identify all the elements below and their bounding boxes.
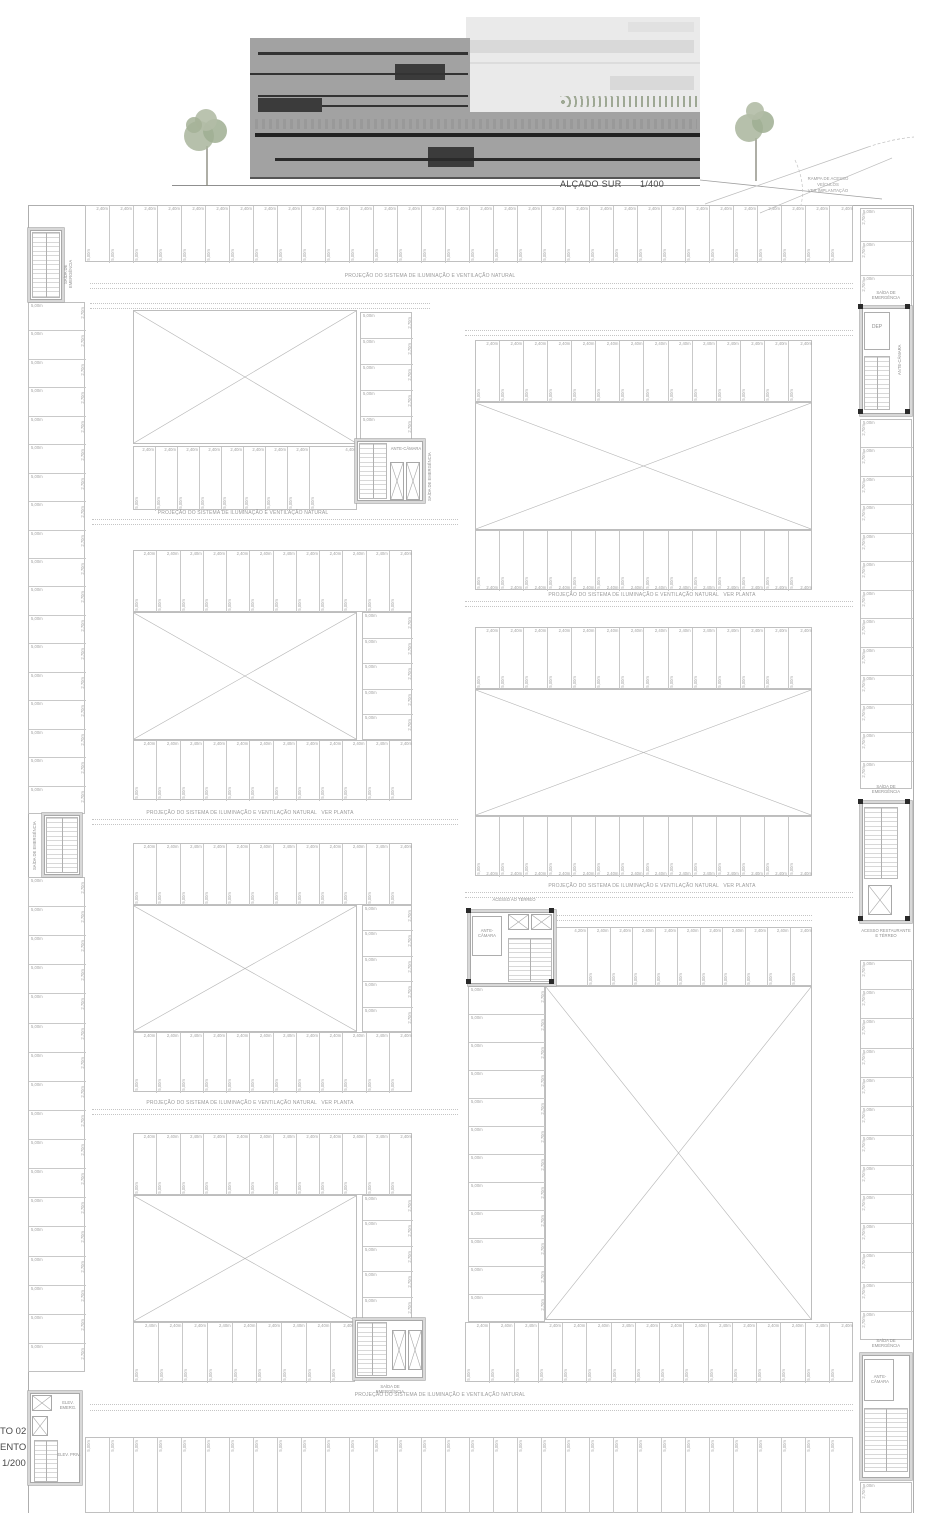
parking-stall: 2,40m5,00m [390,1134,413,1196]
stall-dimension: 2,70m [408,910,412,922]
parking-stall: 5,00m2,70m [861,1283,913,1312]
parking-stall: 5,00m2,70m [361,391,413,417]
stall-dimension: 5,00m [391,892,395,904]
stall-dimension: 5,00m [423,1440,427,1452]
stall-dimension: 5,00m [159,249,163,261]
stall-dimension: 5,00m [831,249,835,261]
stall-dimension: 5,00m [735,1440,739,1452]
stall-dimension: 2,70m [408,1276,412,1288]
stall-dimension: 5,00m [471,1044,483,1048]
sheet-title-fragment: ENTO [0,1443,26,1453]
parking-stall: 5,00m2,70m [29,502,86,530]
stall-dimension: 5,00m [639,249,643,261]
parking-stall: 2,40m5,00m [781,1323,805,1383]
stall-dimension: 5,00m [543,249,547,261]
parking-stall: 2,40m5,00m [693,341,717,403]
stall-dimension: 2,40m [400,845,412,849]
parking-stall: 2,40m5,00m [645,628,669,690]
projection-dotted-line [92,1109,458,1110]
parking-stall: 5,00m2,70m [29,730,86,758]
stall-dimension: 5,00m [391,1079,395,1091]
stall-dimension: 2,70m [81,392,85,404]
stall-dimension: 5,00m [477,676,481,688]
stall-dimension: 5,00m [159,1440,163,1452]
parking-stall: 2,40m5,00m [250,1134,273,1196]
parking-stall: 2,40m5,00m [297,551,320,613]
stall-dimension: 2,40m [353,1034,365,1038]
stall-dimension: 5,00m [783,1440,787,1452]
stall-dimension: 5,00m [158,1079,162,1091]
stall-dimension: 5,00m [275,1182,279,1194]
stall-dimension: 5,00m [31,418,43,422]
parking-column: 5,00m2,70m5,00m2,70m5,00m2,70m5,00m2,70m… [860,419,912,789]
parking-stall: 2,40m5,00m [660,1323,684,1383]
parking-stall: 5,00m [302,1438,326,1513]
stall-dimension: 5,00m [365,614,377,618]
stall-dimension: 5,00m [267,497,271,509]
stall-dimension: 5,00m [368,1182,372,1194]
stall-dimension: 5,00m [782,1369,786,1381]
stall-dimension: 5,00m [831,1440,835,1452]
parking-stall: 5,00m [86,1438,110,1513]
elevation-scale: 1/400 [640,179,664,189]
parking-stall: 2,40m5,00m [806,1323,830,1383]
stall-dimension: 2,40m [186,448,198,452]
stall-dimension: 5,00m [702,973,706,985]
stall-dimension: 5,00m [298,599,302,611]
ante-chamber-label: ANTE-CÂMARA [473,928,501,939]
stall-dimension: 5,00m [718,577,722,589]
stall-dimension: 2,40m [213,1034,225,1038]
elevator-shaft [32,1416,48,1436]
stair-icon [32,232,60,298]
stall-dimension: 5,00m [694,577,698,589]
parking-stall: 2,40m5,00m [367,1033,390,1093]
stall-dimension: 5,00m [766,389,770,401]
stall-dimension: 2,40m [751,586,763,590]
parking-stall: 2,40m5,00m [320,1033,343,1093]
parking-stall: 2,40m5,00m [157,1033,180,1093]
stall-dimension: 2,70m [81,762,85,774]
parking-stall: 5,00m [734,1438,758,1513]
stall-dimension: 5,00m [207,1440,211,1452]
parking-row: 4,20m5,00m2,40m5,00m2,40m5,00m2,40m5,00m… [545,927,812,986]
stall-dimension: 2,70m [81,705,85,717]
stall-dimension: 2,40m [687,929,699,933]
stall-dimension: 2,40m [703,629,715,633]
stall-dimension: 5,00m [646,577,650,589]
stall-dimension: 2,70m [862,766,866,778]
stall-dimension: 5,00m [31,1141,43,1145]
stall-dimension: 5,00m [275,787,279,799]
stall-dimension: 5,00m [228,1182,232,1194]
stall-dimension: 5,00m [742,389,746,401]
parking-stall: 5,00m [158,1438,182,1513]
parking-stall: 2,40m5,00m [741,628,765,690]
stall-dimension: 2,40m [679,629,691,633]
parking-stall: 2,40m5,00m [587,1323,611,1383]
stall-dimension: 5,00m [344,1079,348,1091]
stall-dimension: 2,40m [144,1135,156,1139]
parking-stall: 5,00m2,70m [363,1008,413,1033]
stall-dimension: 2,40m [583,586,595,590]
sheet-title-fragment: TO 02 [0,1427,26,1437]
parking-stall: 5,00m [566,1438,590,1513]
stall-dimension: 5,00m [471,988,483,992]
stall-dimension: 2,40m [619,929,631,933]
stall-dimension: 5,00m [321,1182,325,1194]
stall-dimension: 5,00m [646,389,650,401]
parking-row: 2,40m5,00m2,40m5,00m2,40m5,00m2,40m5,00m… [133,446,357,510]
stall-dimension: 5,00m [718,863,722,875]
elevator-shaft [390,462,404,500]
stall-dimension: 5,00m [298,1182,302,1194]
stall-dimension: 2,40m [145,1324,157,1328]
stall-dimension: 5,00m [31,617,43,621]
stall-dimension: 2,40m [164,448,176,452]
structural-column [905,409,910,414]
stall-dimension: 2,40m [376,1135,388,1139]
stall-dimension: 2,40m [486,629,498,633]
parking-stall: 2,40m5,00m [274,1134,297,1196]
parking-stall: 2,40m5,00m [789,817,813,877]
stall-dimension: 5,00m [205,787,209,799]
projection-dotted-line [90,308,430,309]
emergency-exit-label: SAÍDA DE EMERGÊNCIA [32,820,42,872]
stall-dimension: 2,70m [81,1173,85,1185]
stall-dimension: 2,40m [244,1324,256,1328]
parking-stall: 5,00m2,70m [29,474,86,502]
stall-dimension: 5,00m [615,1440,619,1452]
stall-dimension: 5,00m [471,249,475,261]
elevator-shaft [406,462,420,500]
stall-dimension: 2,70m [81,421,85,433]
stall-dimension: 2,40m [525,1324,537,1328]
stall-dimension: 5,00m [228,892,232,904]
stall-dimension: 2,70m [862,994,866,1006]
stall-dimension: 5,00m [621,389,625,401]
stall-dimension: 2,40m [510,629,522,633]
stall-dimension: 5,00m [471,1128,483,1132]
stall-dimension: 2,70m [81,620,85,632]
parking-stall: 5,00m2,70m [29,1140,86,1169]
stall-dimension: 2,70m [862,246,866,258]
parking-stall: 2,40m5,00m [250,551,273,613]
stall-dimension: 2,40m [213,742,225,746]
stall-dimension: 5,00m [471,1212,483,1216]
parking-stall: 5,00m2,70m [29,1257,86,1286]
parking-stall: 2,40m5,00m [134,1033,157,1093]
stall-dimension: 5,00m [298,892,302,904]
stall-dimension: 5,00m [351,1440,355,1452]
structural-column [858,799,863,804]
stall-dimension: 5,00m [597,577,601,589]
stall-dimension: 2,40m [268,1324,280,1328]
stall-dimension: 5,00m [87,1440,91,1452]
elevator-shaft [408,1330,422,1370]
stall-dimension: 5,00m [613,1369,617,1381]
stall-dimension: 2,40m [353,845,365,849]
stall-dimension: 2,40m [190,845,202,849]
stall-dimension: 5,00m [612,973,616,985]
stair-icon [864,1408,908,1472]
stall-dimension: 2,70m [862,965,866,977]
parking-row: 2,40m5,00m2,40m5,00m2,40m5,00m2,40m5,00m… [133,1133,412,1195]
stall-dimension: 2,40m [655,586,667,590]
parking-stall: 2,40m5,00m [367,741,390,801]
stall-dimension: 2,40m [631,872,643,876]
parking-stall: 2,40m5,00m [476,628,500,690]
stall-dimension: 2,40m [353,552,365,556]
drawing-sheet: ALÇADO SUR 1/400 RAMPA DE ACESSO VEÍCULO… [0,0,946,1513]
stall-dimension: 2,40m [646,1324,658,1328]
parking-column: 5,00m2,70m5,00m2,70m5,00m2,70m5,00m2,70m… [28,302,85,814]
stall-dimension: 5,00m [467,1369,471,1381]
parking-stall: 5,00m2,70m [469,1183,546,1211]
parking-stall: 2,40m5,00m [288,447,310,511]
stall-dimension: 5,00m [549,863,553,875]
stall-dimension: 5,00m [31,446,43,450]
parking-stall: 2,40m5,00m [524,817,548,877]
parking-stall: 5,00m [662,1438,686,1513]
stall-dimension: 5,00m [363,418,375,422]
parking-stall: 2,40m5,00m [134,551,157,613]
stall-dimension: 5,00m [391,1182,395,1194]
parking-stall: 5,00m2,70m [29,758,86,786]
parking-stall: 2,40m5,00m [178,447,200,511]
parking-stall: 5,00m2,70m [861,1049,913,1078]
parking-stall: 2,40m5,00m [390,844,413,906]
stall-dimension: 5,00m [344,787,348,799]
parking-stall: 2,40m5,00m [159,1323,184,1383]
parking-stall: 2,40m5,00m [596,341,620,403]
parking-stall: 5,00m2,70m [363,931,413,956]
parking-stall: 5,00m2,70m [29,1286,86,1315]
parking-stall: 5,00m2,70m [363,1196,413,1221]
stall-dimension: 2,70m [81,307,85,319]
stall-dimension: 2,70m [408,694,412,706]
parking-stall: 2,40m5,00m [227,1033,250,1093]
stall-dimension: 5,00m [471,1240,483,1244]
stall-dimension: 5,00m [201,497,205,509]
stall-dimension: 2,40m [353,742,365,746]
stall-dimension: 2,40m [775,342,787,346]
stall-dimension: 5,00m [694,676,698,688]
parking-stall: 2,40m5,00m [343,551,366,613]
stall-dimension: 5,00m [182,892,186,904]
stall-dimension: 2,70m [408,668,412,680]
stall-dimension: 5,00m [157,497,161,509]
stall-dimension: 2,40m [732,929,744,933]
ante-chamber-label: ANTE-CÂMARA [390,446,422,451]
stall-dimension: 2,40m [703,586,715,590]
stall-dimension: 5,00m [275,892,279,904]
parking-stall: 2,40m5,00m [830,1323,854,1383]
parking-row: 2,40m5,00m2,40m5,00m2,40m5,00m2,40m5,00m… [475,627,812,689]
stall-dimension: 5,00m [31,995,43,999]
parking-stall: 2,40m5,00m [297,1134,320,1196]
stall-dimension: 5,00m [135,787,139,799]
stall-dimension: 5,00m [807,1440,811,1452]
parking-stall: 2,40m5,00m [181,1033,204,1093]
stall-dimension: 5,00m [365,665,377,669]
parking-column: 5,00m2,70m5,00m2,70m5,00m2,70m5,00m2,70m… [860,960,912,1340]
elevation-drawing: ALÇADO SUR 1/400 RAMPA DE ACESSO VEÍCULO… [0,0,946,205]
stall-dimension: 2,40m [751,872,763,876]
stall-dimension: 2,40m [208,448,220,452]
parking-stall: 2,40m5,00m [620,341,644,403]
stall-dimension: 5,00m [710,1369,714,1381]
stall-dimension: 5,00m [718,389,722,401]
stall-dimension: 5,00m [258,1369,262,1381]
parking-stall: 5,00m2,70m [469,1295,546,1323]
elev-emerg-label: ELEV. EMERG. [55,1400,81,1411]
structural-column [466,908,471,913]
stall-dimension: 2,70m [862,1023,866,1035]
parking-stall: 2,40m5,00m [633,928,656,987]
stall-dimension: 5,00m [368,787,372,799]
parking-stall: 2,40m5,00m [572,817,596,877]
parking-stall: 2,40m5,00m [134,447,156,511]
parking-stall: 5,00m2,70m [29,360,86,388]
parking-stall: 5,00m2,70m [363,715,413,741]
parking-stall: 2,40m5,00m [181,741,204,801]
stall-dimension: 2,40m [376,1034,388,1038]
parking-stall: 5,00m2,70m [29,388,86,416]
parking-stall: 5,00m [446,1438,470,1513]
stall-dimension: 5,00m [31,731,43,735]
stair-icon [864,356,890,410]
stall-dimension: 2,40m [800,342,812,346]
stall-dimension: 5,00m [766,577,770,589]
parking-stall: 5,00m [638,1438,662,1513]
parking-stall: 5,00m [542,1438,566,1513]
stall-dimension: 5,00m [766,676,770,688]
stall-dimension: 2,70m [408,935,412,947]
stall-dimension: 5,00m [790,577,794,589]
stall-dimension: 5,00m [661,1369,665,1381]
access-ground-label: ACESSO AO TÉRREO [492,897,536,902]
stall-dimension: 2,40m [353,1135,365,1139]
stall-dimension: 2,40m [679,586,691,590]
parking-stall: 2,40m5,00m [297,844,320,906]
parking-stall: 2,40m5,00m [656,928,679,987]
stall-dimension: 5,00m [471,1156,483,1160]
stall-dimension: 2,70m [862,481,866,493]
parking-stall: 5,00m2,70m [29,1024,86,1053]
parking-stall: 2,40m5,00m [244,447,266,511]
projection-dotted-line [90,1410,853,1411]
parking-stall: 5,00m2,70m [363,613,413,639]
stall-dimension: 2,70m [862,1140,866,1152]
parking-stall: 2,40m5,00m [227,844,250,906]
elevator-shaft [868,885,892,915]
parking-stall: 2,40m5,00m [181,844,204,906]
stall-dimension: 5,00m [289,497,293,509]
stall-dimension: 4,20m [574,929,586,933]
stall-dimension: 5,00m [158,599,162,611]
parking-stall: 2,40m5,00m [297,1033,320,1093]
parking-stall: 5,00m [518,1438,542,1513]
stall-dimension: 2,70m [81,1028,85,1040]
parking-stall: 5,00m2,70m [469,1267,546,1295]
stall-dimension: 5,00m [31,1316,43,1320]
parking-stall: 5,00m2,70m [363,1247,413,1272]
stall-dimension: 5,00m [742,577,746,589]
stall-dimension: 2,70m [862,424,866,436]
stall-dimension: 5,00m [471,1268,483,1272]
parking-stall: 2,40m5,00m [250,741,273,801]
parking-row: 2,40m5,00m2,40m5,00m2,40m5,00m2,40m5,00m… [475,340,812,402]
parking-stall: 5,00m [494,1438,518,1513]
stall-dimension: 5,00m [158,787,162,799]
parking-stall: 5,00m2,70m [29,907,86,936]
parking-stall: 2,40m5,00m [611,928,634,987]
parking-stall: 5,00m2,70m [29,559,86,587]
parking-stall: 2,40m5,00m [307,1323,332,1383]
emergency-exit-label: SAÍDA DE EMERGÊNCIA [372,1384,408,1395]
stall-dimension: 2,70m [81,478,85,490]
stall-dimension: 5,00m [31,759,43,763]
stall-dimension: 5,00m [375,249,379,261]
parking-stall: 2,40m5,00m [266,447,288,511]
stall-dimension: 2,40m [190,552,202,556]
stall-dimension: 2,70m [81,940,85,952]
stall-dimension: 5,00m [549,676,553,688]
parking-stall: 2,40m5,00m [257,1323,282,1383]
sheet-title-fragment: 1/200 [2,1459,26,1469]
stall-dimension: 2,40m [679,872,691,876]
stair-icon [359,443,387,499]
stall-dimension: 5,00m [391,599,395,611]
projection-dotted-line [90,1404,853,1405]
stall-dimension: 5,00m [365,932,377,936]
parking-stall: 5,00m [182,1438,206,1513]
projection-dotted-line [465,892,853,893]
stall-dimension: 2,40m [230,448,242,452]
stall-dimension: 2,40m [376,552,388,556]
parking-stall: 5,00m2,70m [861,1195,913,1224]
parking-stall: 2,40m5,00m [390,741,413,801]
parking-stall: 2,40m5,00m [204,551,227,613]
stall-dimension: 5,00m [792,973,796,985]
parking-stall: 2,40m5,00m [157,844,180,906]
emergency-exit-label: SAÍDA DE EMERGÊNCIA [427,452,437,502]
parking-stall: 2,40m5,00m [500,817,524,877]
stall-dimension: 5,00m [368,1079,372,1091]
stall-dimension: 2,70m [81,1115,85,1127]
parking-stall: 5,00m2,70m [29,445,86,473]
stall-dimension: 2,70m [81,1290,85,1302]
parking-row: 2,40m5,00m2,40m5,00m2,40m5,00m2,40m5,00m… [133,550,412,612]
stall-dimension: 2,40m [260,845,272,849]
parking-stall: 5,00m2,70m [861,562,913,590]
parking-stall: 5,00m2,70m [861,242,913,275]
stall-dimension: 5,00m [31,532,43,536]
stall-dimension: 5,00m [831,1369,835,1381]
parking-column: 5,00m2,70m5,00m2,70m5,00m2,70m5,00m2,70m… [28,877,85,1372]
elevator-shaft [392,1330,406,1370]
stall-dimension: 2,70m [862,1053,866,1065]
stall-dimension: 5,00m [543,1440,547,1452]
parking-stall: 5,00m2,70m [861,1078,913,1107]
stall-dimension: 5,00m [747,973,751,985]
stall-dimension: 5,00m [742,676,746,688]
stall-dimension: 5,00m [694,389,698,401]
parking-stall: 5,00m2,70m [861,619,913,647]
stall-dimension: 5,00m [275,1079,279,1091]
tree-icon [735,102,774,181]
